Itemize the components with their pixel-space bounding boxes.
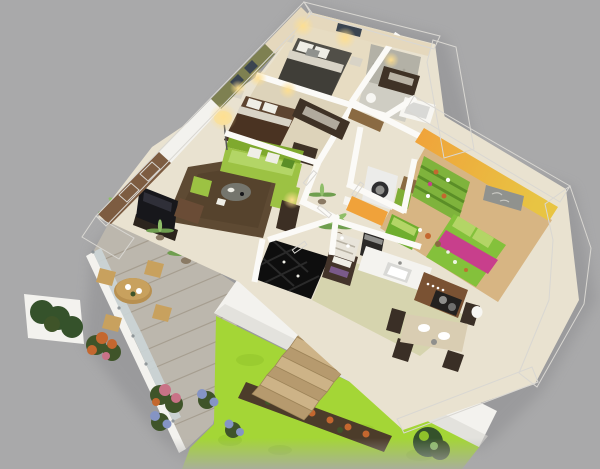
floor-plan-render (0, 0, 600, 469)
plate (438, 332, 450, 340)
coffee-table-item (240, 192, 244, 196)
washbasin (366, 93, 376, 103)
bowl (431, 339, 437, 345)
planter-hedge (24, 294, 84, 344)
washer-door-glass (376, 186, 385, 195)
pot (448, 303, 456, 311)
clock-vase (472, 306, 483, 318)
coffee-table (221, 183, 251, 201)
faucet (398, 261, 402, 265)
plate (418, 324, 430, 332)
bottom-fade (0, 438, 600, 469)
coffee-table-deco (228, 188, 235, 192)
pot (439, 296, 447, 304)
